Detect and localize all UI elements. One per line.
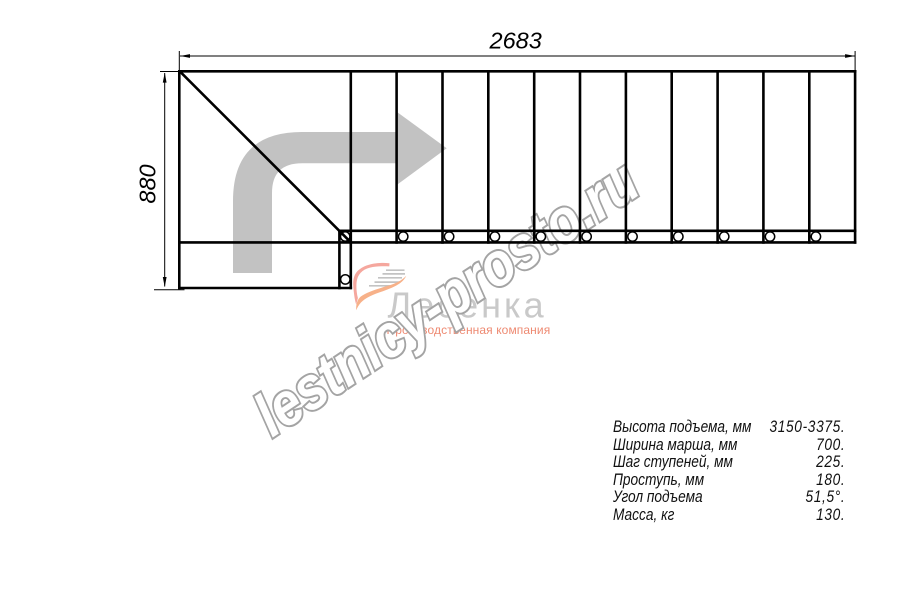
- svg-text:lestnicy-prosto.ru: lestnicy-prosto.ru: [242, 147, 651, 449]
- svg-text:880: 880: [135, 164, 161, 203]
- svg-text:2683: 2683: [489, 28, 542, 54]
